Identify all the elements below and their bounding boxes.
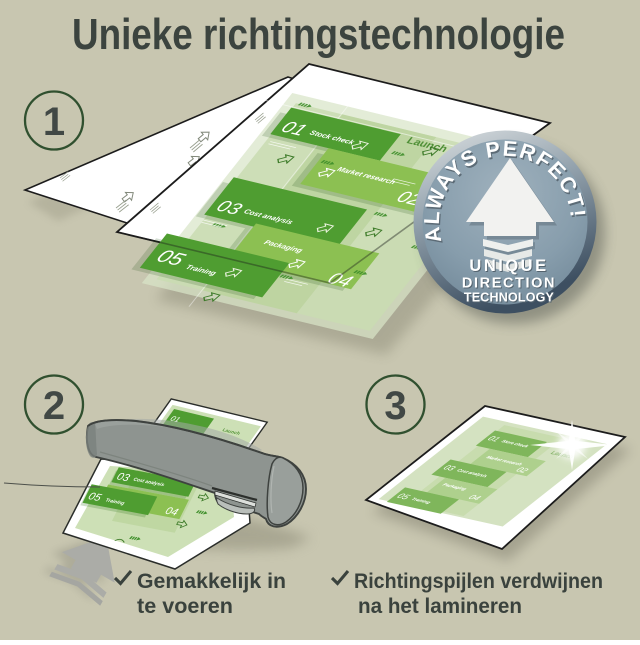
svg-text:te voeren: te voeren bbox=[137, 594, 233, 618]
svg-text:1: 1 bbox=[43, 100, 65, 144]
svg-text:UNIQUE: UNIQUE bbox=[469, 257, 548, 275]
svg-text:Unieke richtingstechnologie: Unieke richtingstechnologie bbox=[72, 10, 565, 59]
svg-text:DIRECTION: DIRECTION bbox=[462, 276, 556, 292]
svg-text:na het lamineren: na het lamineren bbox=[358, 594, 522, 618]
svg-text:2: 2 bbox=[43, 384, 65, 428]
svg-text:Richtingspijlen verdwijnen: Richtingspijlen verdwijnen bbox=[354, 569, 603, 593]
svg-text:TECHNOLOGY: TECHNOLOGY bbox=[464, 291, 555, 305]
svg-text:Gemakkelijk in: Gemakkelijk in bbox=[137, 569, 286, 593]
svg-text:3: 3 bbox=[384, 384, 406, 428]
